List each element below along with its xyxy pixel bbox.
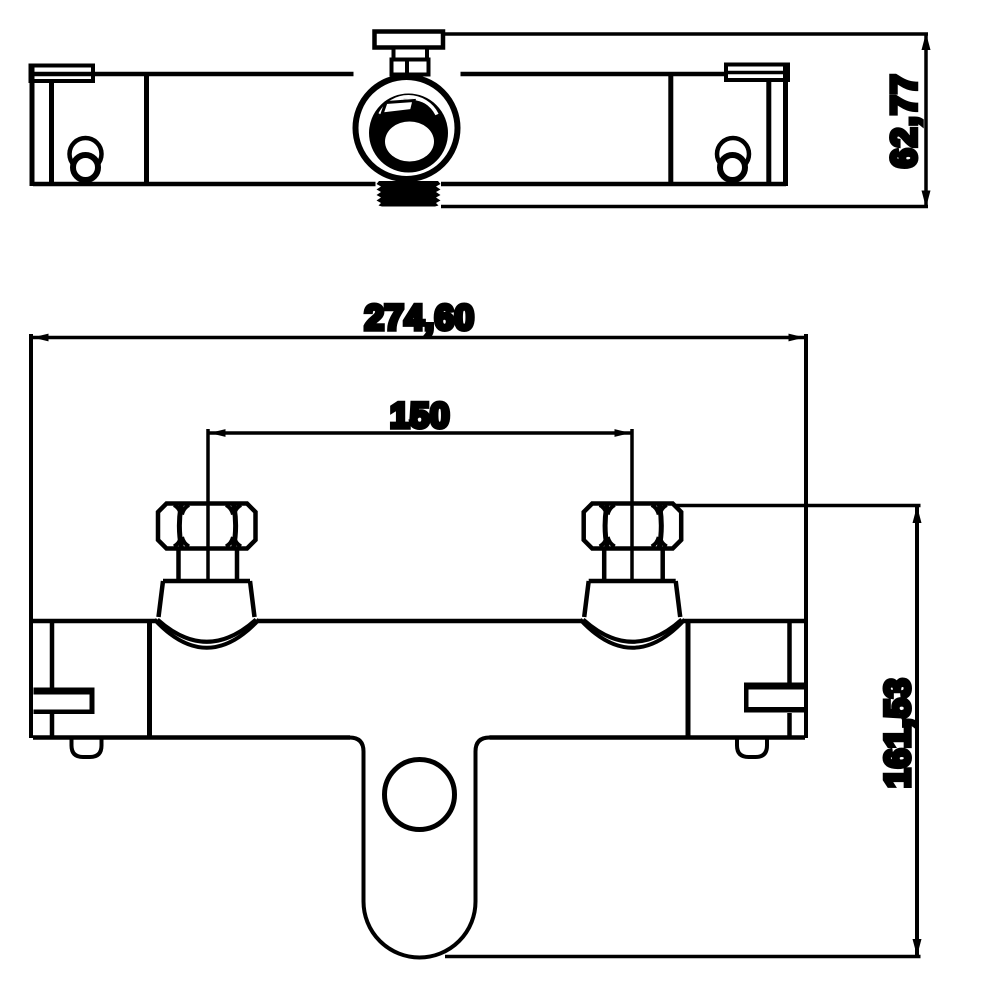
svg-text:62,77: 62,77	[885, 73, 924, 168]
svg-text:150: 150	[390, 397, 450, 436]
svg-text:274,60: 274,60	[364, 299, 474, 338]
svg-text:161,53: 161,53	[879, 678, 918, 788]
